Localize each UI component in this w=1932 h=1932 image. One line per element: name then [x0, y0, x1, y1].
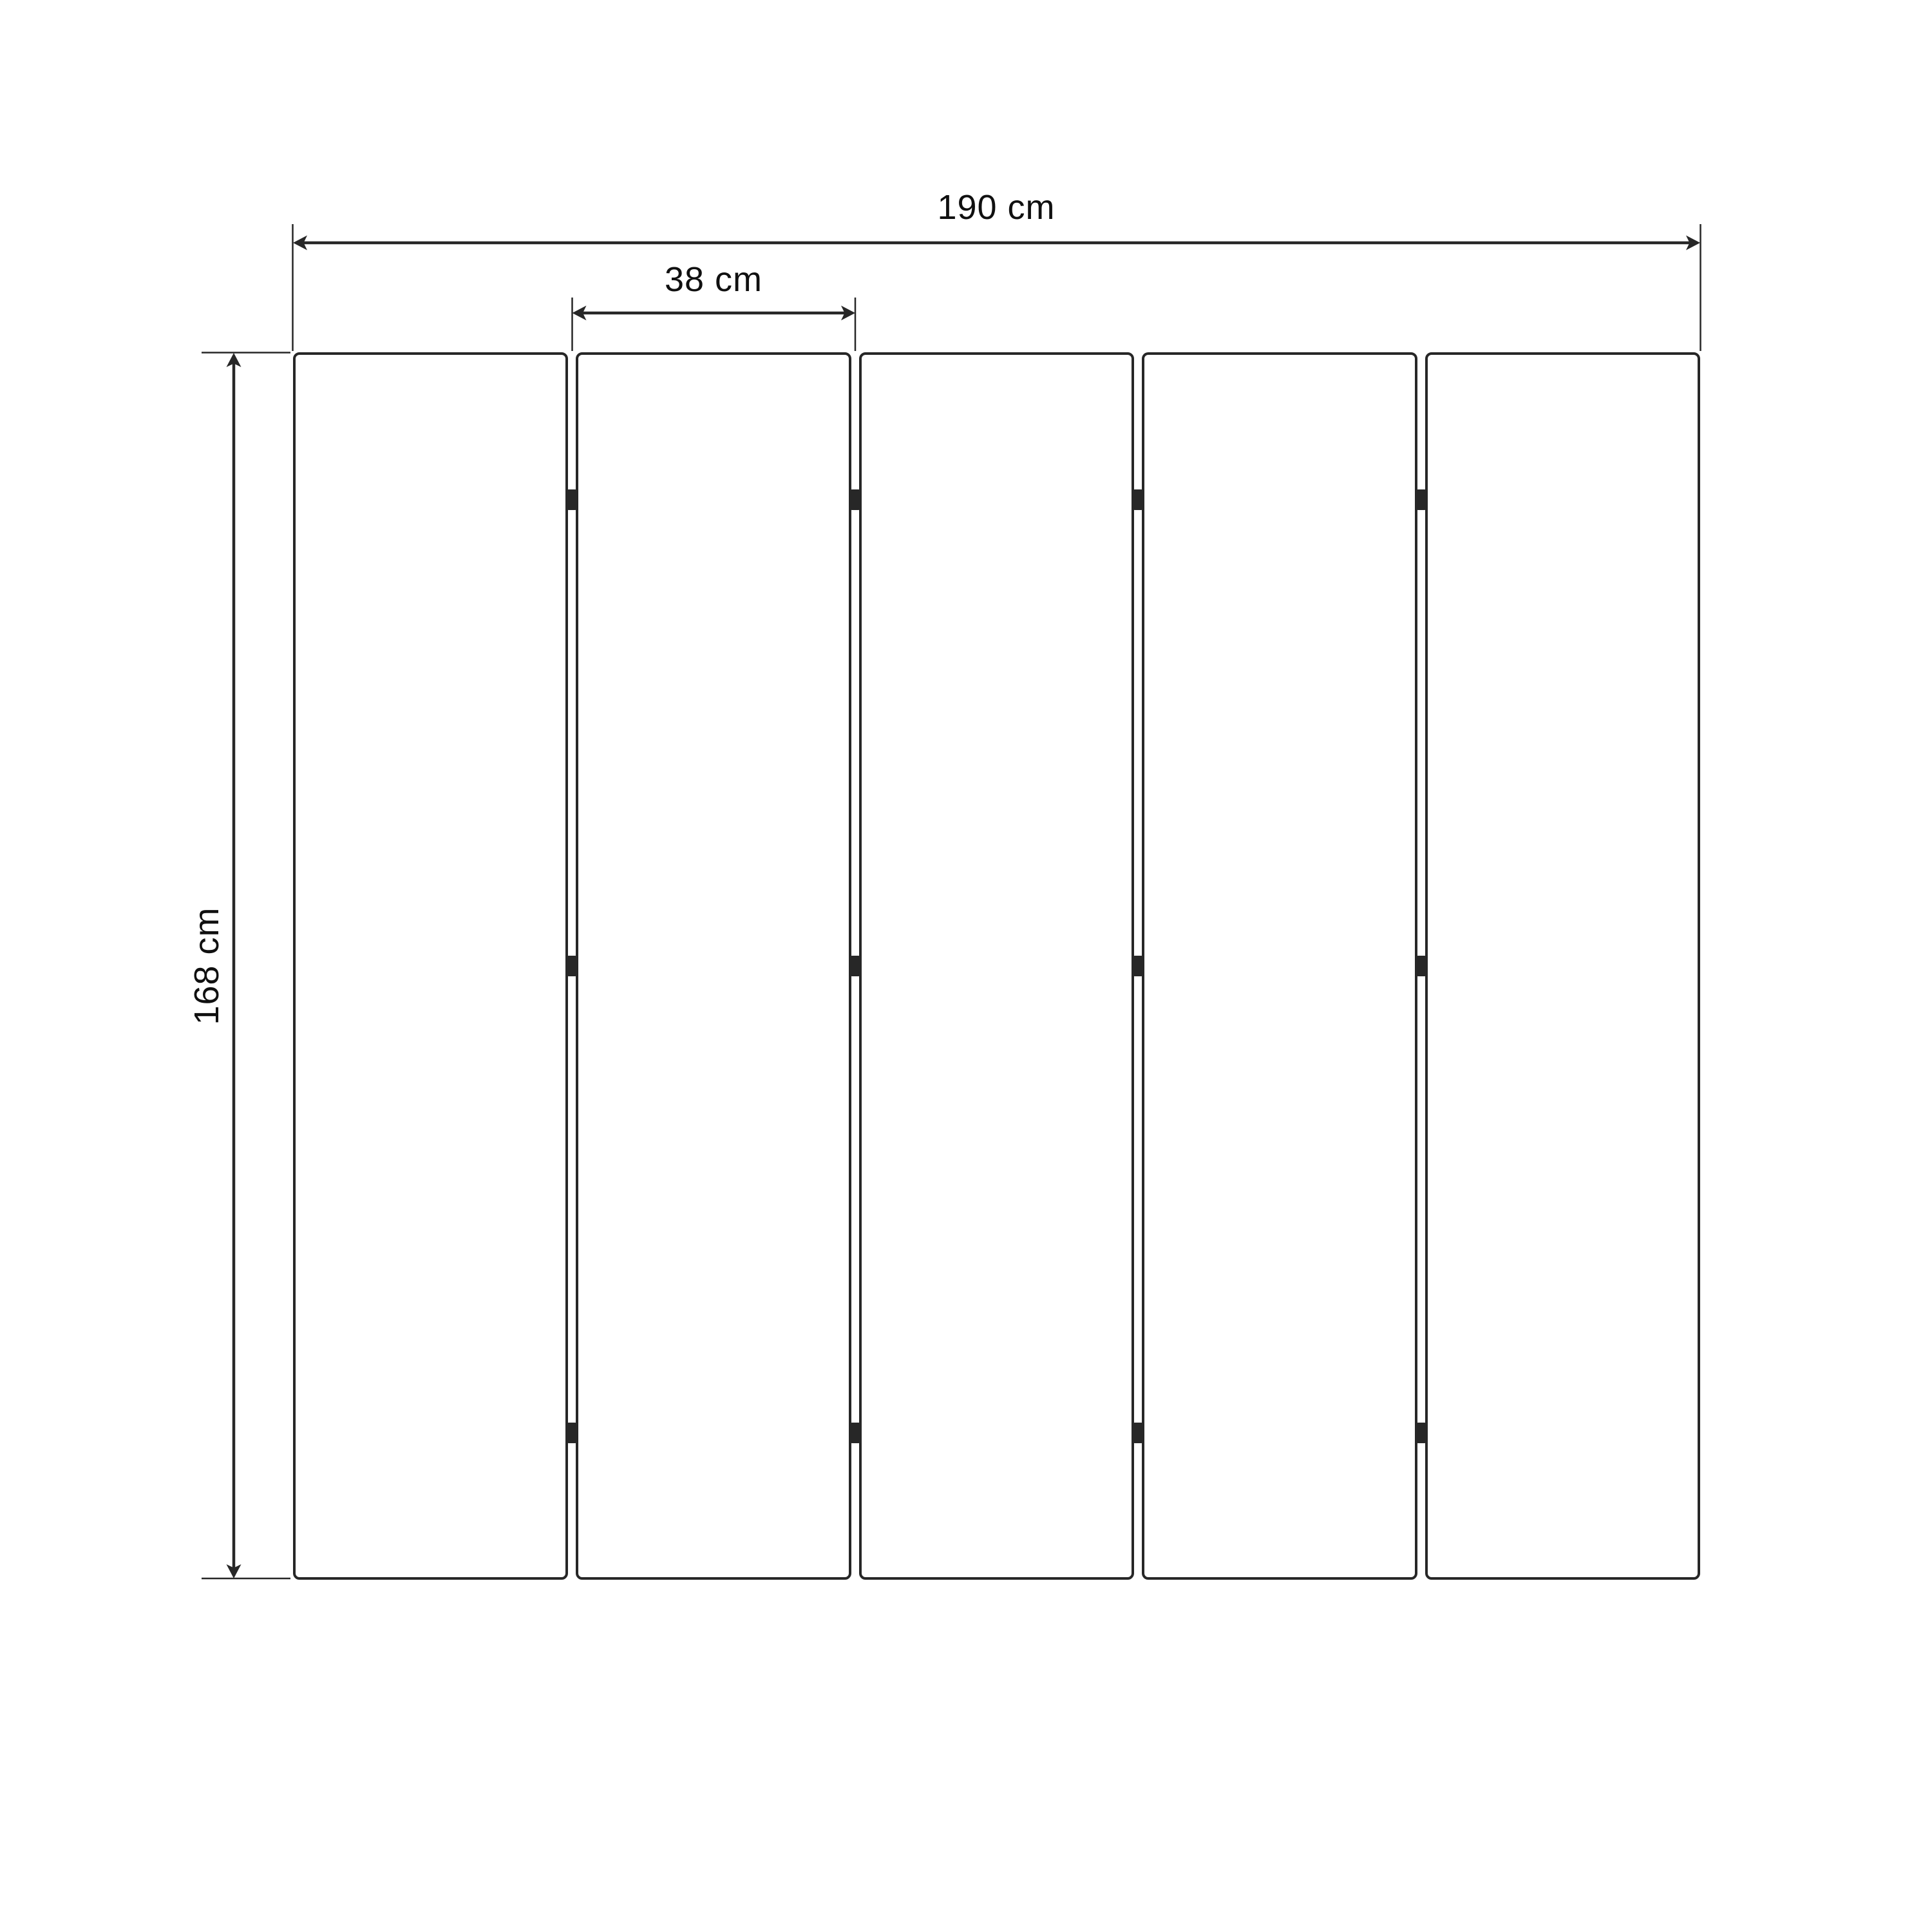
- screen-panel: [576, 352, 851, 1580]
- height-dimension-label: 168 cm: [189, 869, 224, 1063]
- panel-width-dimension: [573, 298, 856, 351]
- arrowhead-right-icon: [1686, 236, 1700, 251]
- hinge: [1133, 956, 1142, 976]
- hinge: [567, 1423, 576, 1443]
- hinge: [1133, 1423, 1142, 1443]
- arrowhead-left-icon: [293, 236, 307, 251]
- hinge: [851, 1423, 860, 1443]
- hinge: [1417, 489, 1426, 510]
- hinge: [851, 956, 860, 976]
- arrowhead-up-icon: [227, 353, 241, 367]
- hinge: [851, 489, 860, 510]
- hinge: [1417, 1423, 1426, 1443]
- folding-screen-dimension-diagram: 190 cm 38 cm 168 cm: [0, 0, 1932, 1932]
- hinge: [567, 489, 576, 510]
- hinge: [1133, 489, 1142, 510]
- arrowhead-down-icon: [227, 1564, 241, 1578]
- total-width-dimension-label: 190 cm: [848, 190, 1144, 225]
- arrowhead-left-icon: [573, 306, 587, 321]
- screen-panel: [293, 352, 568, 1580]
- panel-row: [293, 352, 1700, 1580]
- hinge: [567, 956, 576, 976]
- screen-panel: [859, 352, 1134, 1580]
- screen-panel: [1425, 352, 1700, 1580]
- screen-panel: [1142, 352, 1417, 1580]
- arrowhead-right-icon: [841, 306, 855, 321]
- total-width-dimension: [293, 224, 1701, 351]
- hinge: [1417, 956, 1426, 976]
- panel-width-dimension-label: 38 cm: [604, 262, 823, 297]
